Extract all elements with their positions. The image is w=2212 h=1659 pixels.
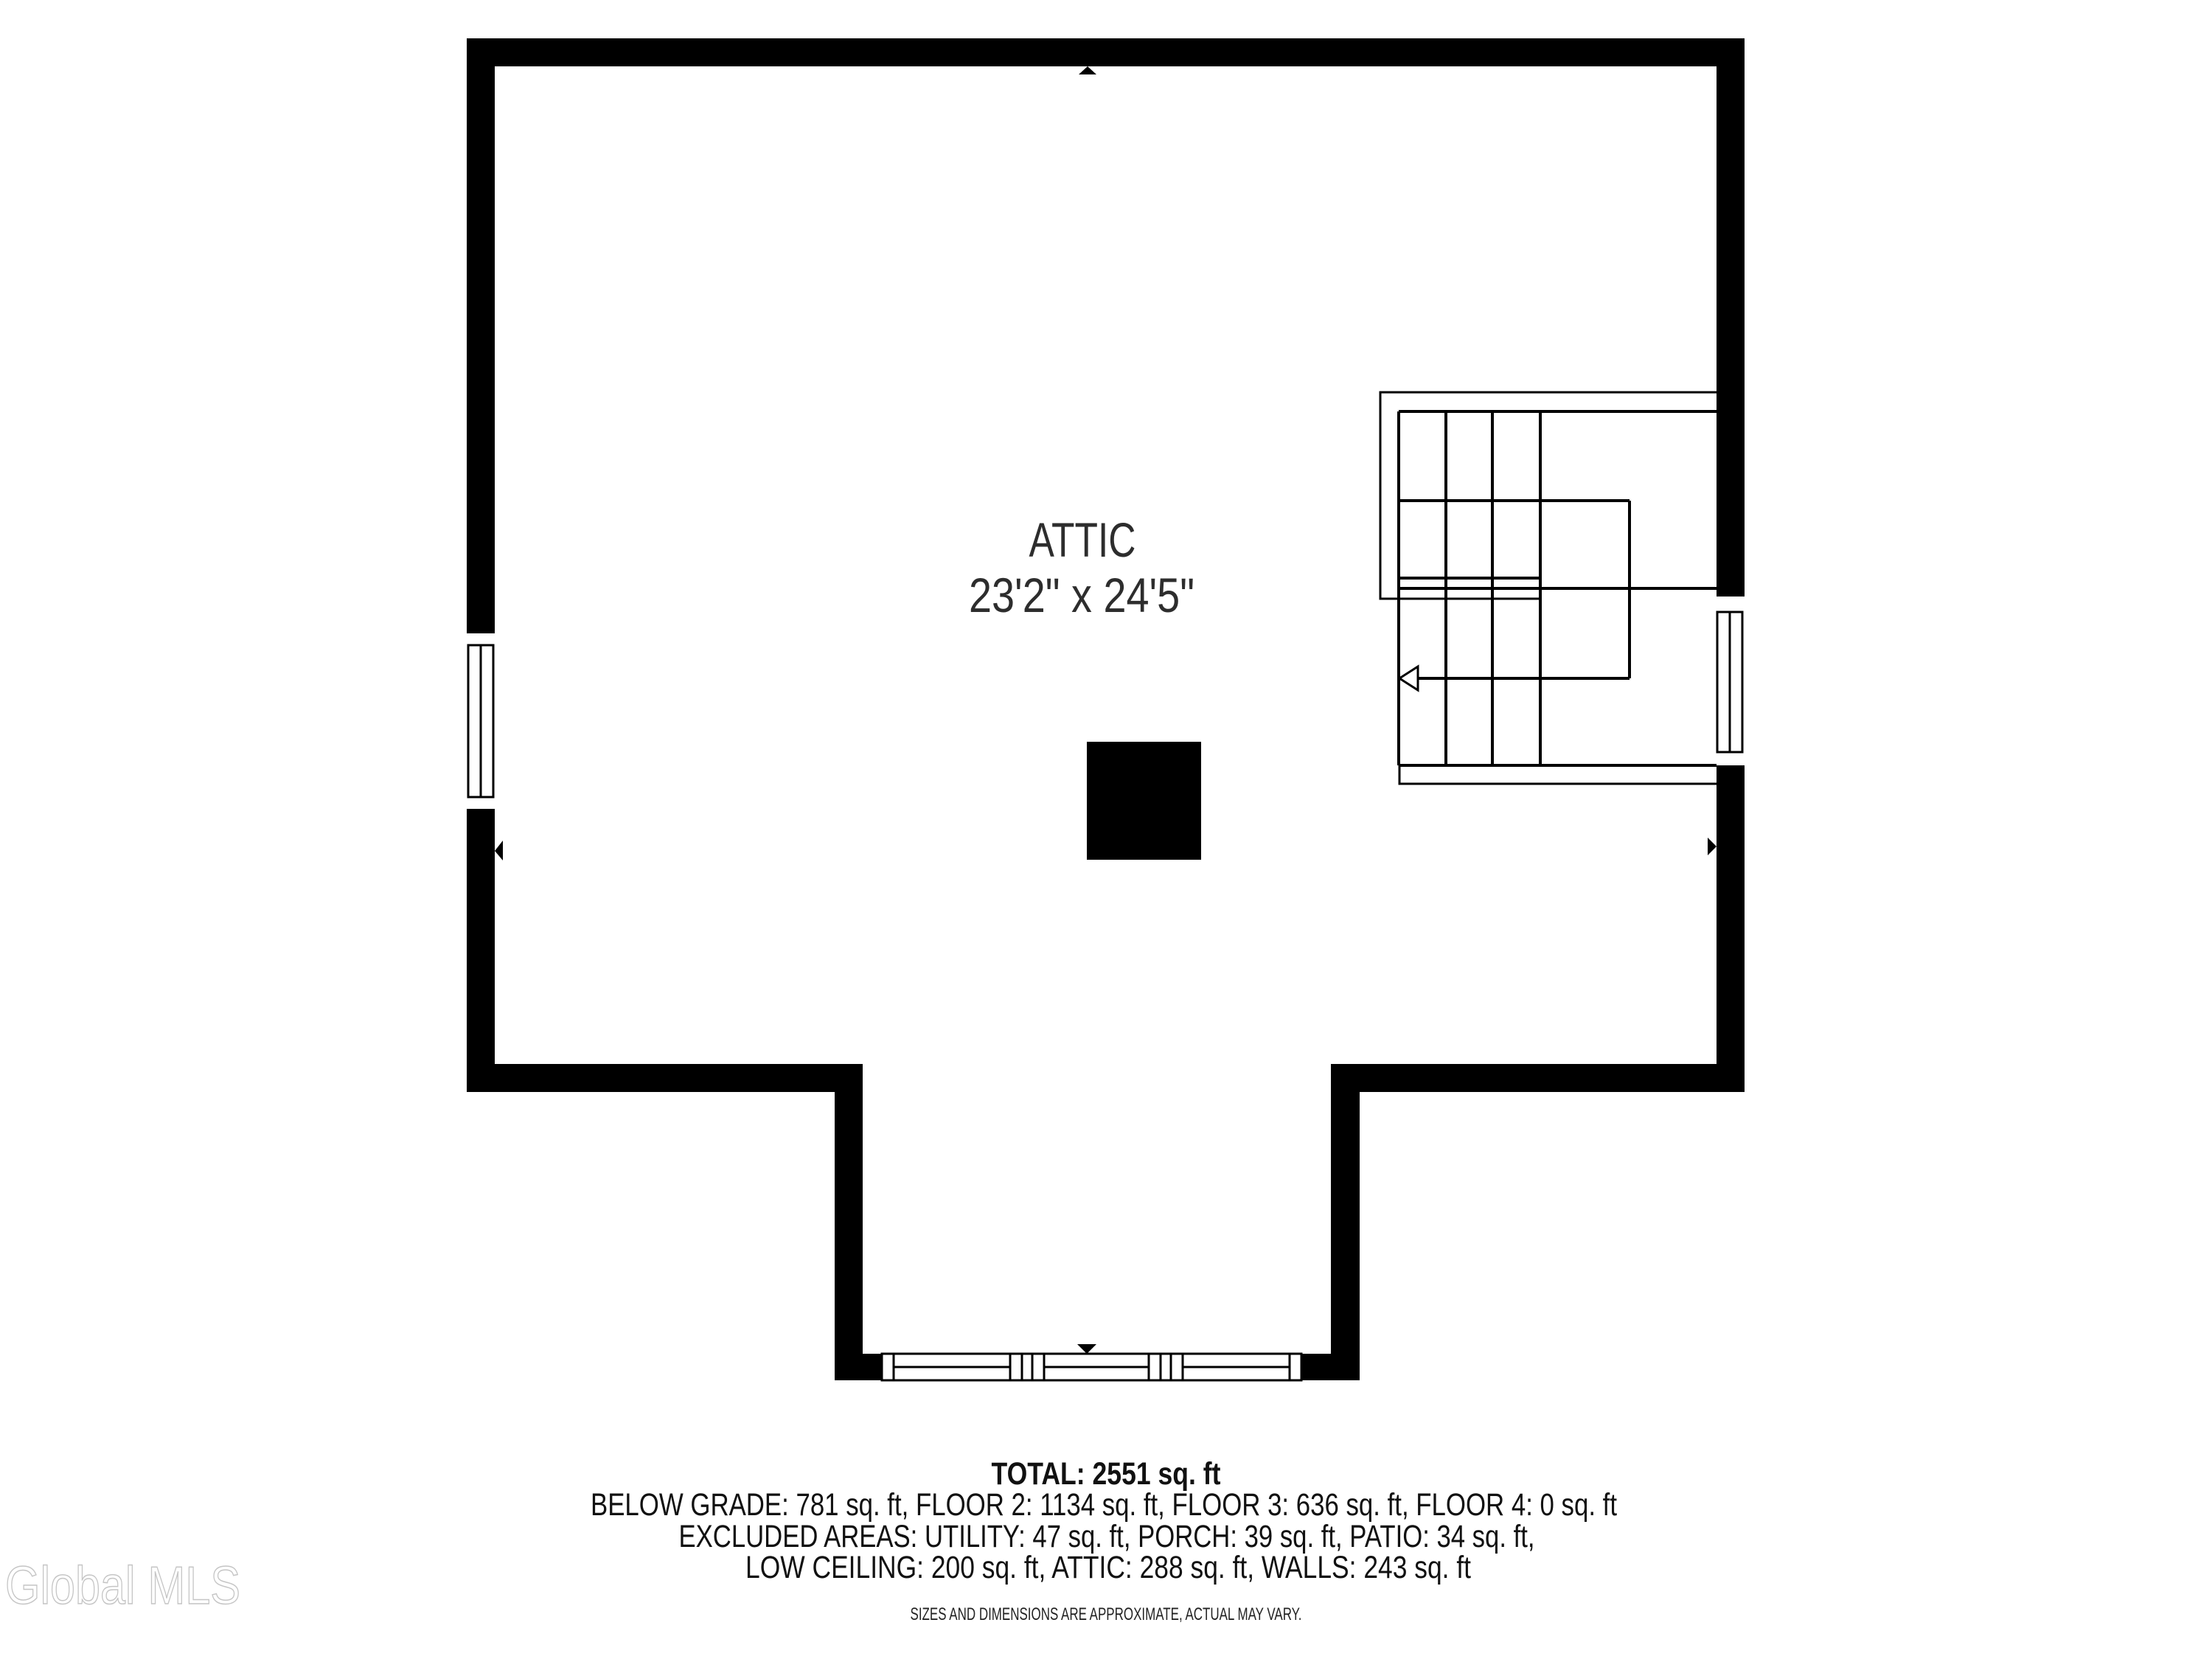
svg-text:SIZES AND DIMENSIONS ARE APPRO: SIZES AND DIMENSIONS ARE APPROXIMATE, AC… [911, 1604, 1302, 1624]
svg-text:Global MLS: Global MLS [5, 1557, 240, 1615]
svg-text:23'2" x 24'5": 23'2" x 24'5" [969, 568, 1194, 622]
svg-text:EXCLUDED AREAS: UTILITY: 47 sq: EXCLUDED AREAS: UTILITY: 47 sq. ft, PORC… [679, 1519, 1535, 1554]
svg-text:TOTAL: 2551 sq. ft: TOTAL: 2551 sq. ft [992, 1456, 1221, 1492]
svg-text:LOW CEILING: 200 sq. ft, ATTIC: LOW CEILING: 200 sq. ft, ATTIC: 288 sq. … [745, 1550, 1471, 1585]
svg-text:ATTIC: ATTIC [1029, 512, 1136, 567]
svg-text:BELOW GRADE: 781 sq. ft, FLOOR: BELOW GRADE: 781 sq. ft, FLOOR 2: 1134 s… [591, 1487, 1617, 1523]
